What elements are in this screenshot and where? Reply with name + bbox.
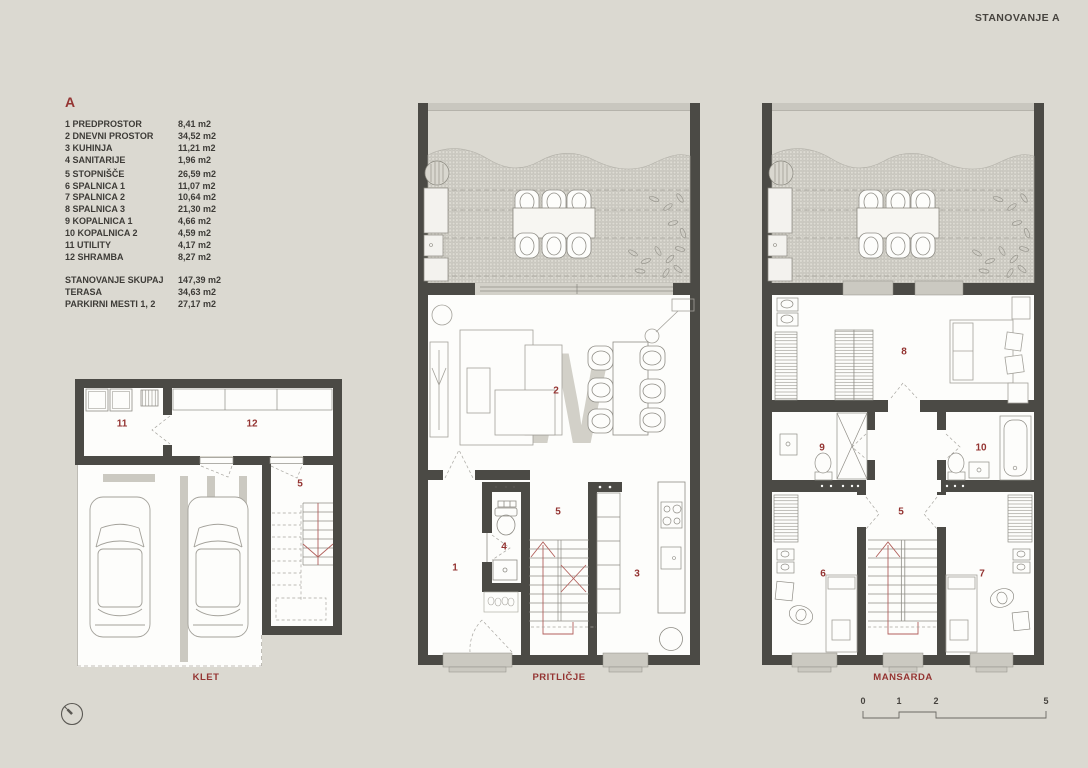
- legend-total-row: STANOVANJE SKUPAJ147,39 m2: [65, 275, 250, 287]
- room-label-spalnica-2: 7: [979, 569, 985, 580]
- legend-total-row: PARKIRNI MESTI 1, 227,17 m2: [65, 299, 250, 311]
- car-2: [188, 497, 248, 637]
- caption-mansarda: MANSARDA: [873, 672, 932, 683]
- room-label-utility: 11: [117, 419, 128, 430]
- room-label-predprostor: 1: [452, 563, 458, 574]
- legend-row: 6 SPALNICA 111,07 m2: [65, 181, 250, 193]
- scale-tick-1: 1: [896, 696, 901, 706]
- mansarda-terrace: [762, 103, 1044, 283]
- caption-pritlicje: PRITLIČJE: [532, 672, 585, 683]
- legend-room-list: 1 PREDPROSTOR8,41 m2 2 DNEVNI PROSTOR34,…: [65, 119, 250, 264]
- mansarda-plan: [762, 281, 1044, 672]
- room-label-shramba: 12: [246, 419, 257, 430]
- pritlicje-plan: kW: [418, 283, 700, 672]
- legend-total-row: TERASA34,63 m2: [65, 287, 250, 299]
- legend-row: 8 SPALNICA 321,30 m2: [65, 204, 250, 216]
- legend: A 1 PREDPROSTOR8,41 m2 2 DNEVNI PROSTOR3…: [65, 94, 250, 311]
- scale-tick-0: 0: [860, 696, 865, 706]
- legend-row: 11 UTILITY4,17 m2: [65, 240, 250, 252]
- legend-row: 7 SPALNICA 210,64 m2: [65, 192, 250, 204]
- legend-row: 4 SANITARIJE1,96 m2: [65, 155, 250, 167]
- sofa-group: [460, 330, 562, 445]
- room-label-spalnica-1: 6: [820, 569, 826, 580]
- car-1: [90, 497, 150, 637]
- room-label-kuhinja: 3: [634, 569, 640, 580]
- room-label-stopnisce-klet: 5: [297, 479, 303, 490]
- legend-header: A: [65, 94, 250, 110]
- scale-tick-5: 5: [1043, 696, 1048, 706]
- room-label-stopnisce-mansarda: 5: [898, 507, 904, 518]
- kitchen-shelf: [597, 493, 620, 613]
- room-label-dnevni-prostor: 2: [553, 386, 559, 397]
- pritlicje-terrace: [418, 103, 700, 283]
- legend-totals: STANOVANJE SKUPAJ147,39 m2 TERASA34,63 m…: [65, 275, 250, 311]
- room-label-sanitarije: 4: [501, 542, 507, 553]
- north-arrow-icon: [62, 704, 83, 725]
- room-label-kopalnica-1: 9: [819, 443, 825, 454]
- klet-plan: [75, 379, 342, 667]
- room-label-stopnisce-pritlicje: 5: [555, 507, 561, 518]
- room-label-kopalnica-2: 10: [975, 443, 986, 454]
- scale-bar: [863, 711, 1046, 718]
- legend-row: 12 SHRAMBA8,27 m2: [65, 252, 250, 264]
- room-label-spalnica-3: 8: [901, 347, 907, 358]
- legend-row: 1 PREDPROSTOR8,41 m2: [65, 119, 250, 131]
- caption-klet: KLET: [193, 672, 220, 683]
- legend-row: 2 DNEVNI PROSTOR34,52 m2: [65, 131, 250, 143]
- plan-sheet: kW: [0, 0, 1088, 768]
- legend-row: 3 KUHINJA11,21 m2: [65, 143, 250, 155]
- scale-tick-2: 2: [933, 696, 938, 706]
- legend-row: 10 KOPALNICA 24,59 m2: [65, 228, 250, 240]
- legend-row: 5 STOPNIŠČE26,59 m2: [65, 169, 250, 181]
- legend-row: 9 KOPALNICA 14,66 m2: [65, 216, 250, 228]
- page-title: STANOVANJE A: [975, 12, 1060, 24]
